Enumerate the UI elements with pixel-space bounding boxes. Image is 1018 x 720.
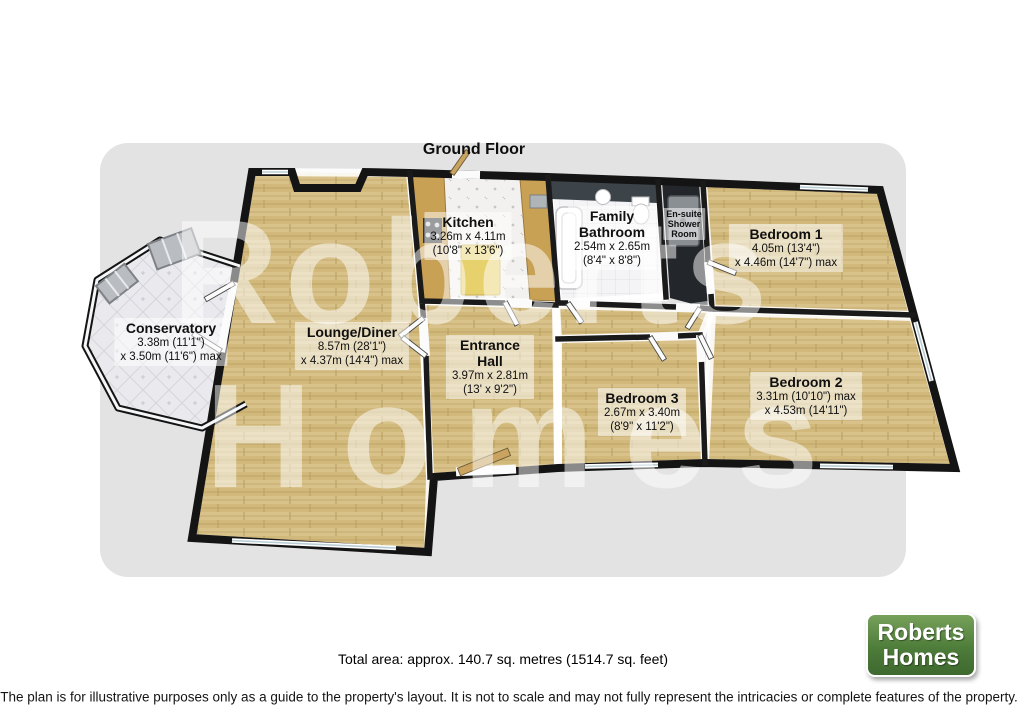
logo-line2: Homes [883, 645, 960, 670]
room-dims: 2.67m x 3.40m [604, 406, 680, 420]
room-dims: 2.54m x 2.65m [574, 240, 650, 254]
room-label-lounge-diner: Lounge/Diner 8.57m (28'1") x 4.37m (14'4… [295, 322, 409, 370]
room-name: Kitchen [430, 214, 505, 230]
room-name: Conservatory [120, 320, 221, 336]
total-area-text: Total area: approx. 140.7 sq. metres (15… [338, 651, 668, 667]
room-label-conservatory: Conservatory 3.38m (11'1") x 3.50m (11'6… [114, 318, 227, 366]
logo-line1: Roberts [878, 620, 965, 645]
room-name: Room [666, 229, 702, 239]
disclaimer-text: The plan is for illustrative purposes on… [0, 690, 1018, 705]
room-name: Lounge/Diner [301, 324, 403, 340]
room-label-ensuite: En-suite Shower Room [663, 208, 705, 240]
room-dims: x 4.53m (14'11") [756, 404, 856, 418]
room-name: En-suite [666, 209, 702, 219]
floorplan-page: Roberts Homes Ground Floor Conservatory … [0, 0, 1018, 720]
room-dims: (10'8" x 13'6") [430, 244, 505, 258]
kitchen-sink [530, 195, 547, 208]
room-label-bedroom-3: Bedroom 3 2.67m x 3.40m (8'9" x 11'2") [598, 388, 686, 436]
room-dims: (8'9" x 11'2") [604, 420, 680, 434]
room-name: Bedroom 1 [735, 226, 837, 242]
roberts-homes-logo: Roberts Homes [866, 613, 976, 677]
room-dims: 3.97m x 2.81m [452, 369, 528, 383]
room-name: Bedroom 3 [604, 390, 680, 406]
room-label-bedroom-2: Bedroom 2 3.31m (10'10") max x 4.53m (14… [750, 372, 862, 420]
room-name: Entrance [452, 337, 528, 353]
room-dims: x 3.50m (11'6") max [120, 350, 221, 364]
room-name: Bedroom 2 [756, 374, 856, 390]
floor-title: Ground Floor [423, 141, 525, 159]
room-dims: 3.26m x 4.11m [430, 230, 505, 244]
room-dims: (13' x 9'2") [452, 383, 528, 397]
room-name: Family [574, 208, 650, 224]
room-name: Hall [452, 353, 528, 369]
room-dims: x 4.46m (14'7") max [735, 256, 837, 270]
room-label-bedroom-1: Bedroom 1 4.05m (13'4") x 4.46m (14'7") … [729, 224, 843, 272]
room-name: Bathroom [574, 224, 650, 240]
room-dims: x 4.37m (14'4") max [301, 354, 403, 368]
room-label-family-bathroom: Family Bathroom 2.54m x 2.65m (8'4" x 8'… [568, 206, 656, 270]
room-dims: 3.38m (11'1") [120, 336, 221, 350]
room-label-kitchen: Kitchen 3.26m x 4.11m (10'8" x 13'6") [424, 212, 511, 260]
room-dims: 3.31m (10'10") max [756, 390, 856, 404]
room-label-entrance-hall: Entrance Hall 3.97m x 2.81m (13' x 9'2") [446, 335, 534, 399]
basin-icon [596, 190, 611, 205]
room-dims: 4.05m (13'4") [735, 242, 837, 256]
room-name: Shower [666, 219, 702, 229]
room-dims: (8'4" x 8'8") [574, 254, 650, 268]
room-dims: 8.57m (28'1") [301, 340, 403, 354]
